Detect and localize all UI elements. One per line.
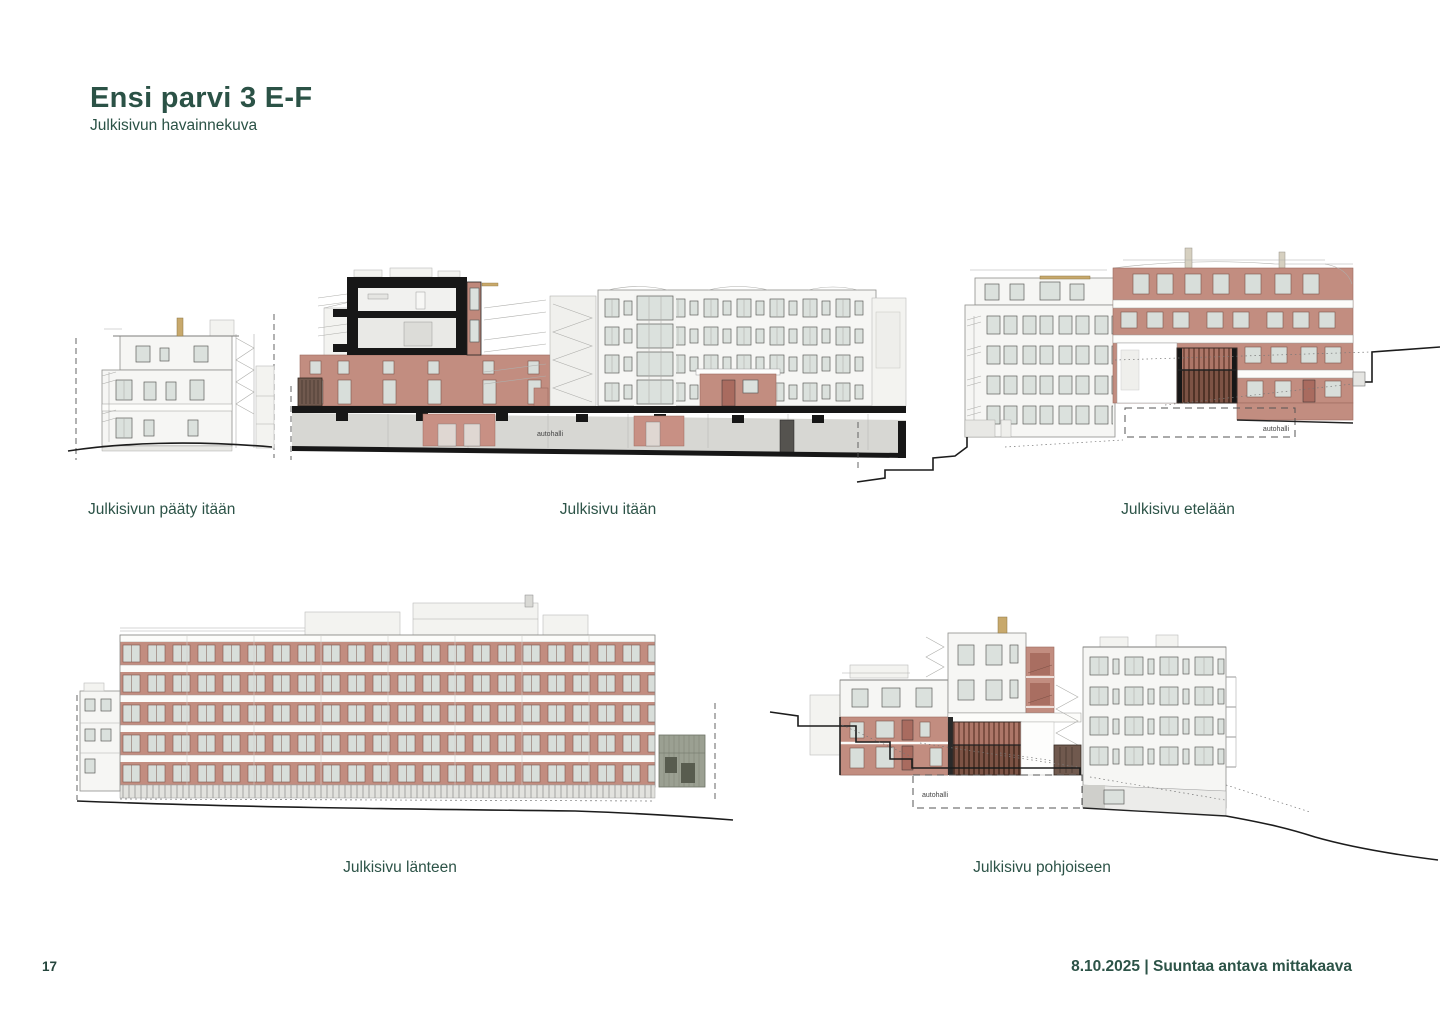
caption-south: Julkisivu etelään bbox=[1028, 501, 1328, 519]
elevation-east-end bbox=[60, 308, 295, 473]
elevation-south: autohalli bbox=[855, 240, 1440, 505]
caption-east: Julkisivu itään bbox=[458, 501, 758, 519]
east-end-drawing bbox=[68, 314, 274, 460]
elevation-west bbox=[75, 595, 735, 835]
west-drawing bbox=[77, 595, 733, 820]
south-drawing: autohalli bbox=[857, 248, 1440, 482]
elevation-east: autohalli bbox=[288, 268, 913, 468]
east-drawing: autohalli bbox=[291, 268, 906, 460]
page-title: Ensi parvi 3 E-F bbox=[90, 82, 312, 115]
garage-label: autohalli bbox=[1263, 426, 1290, 433]
garage-label: autohalli bbox=[922, 792, 949, 799]
sheet: Ensi parvi 3 E-F Julkisivun havainnekuva bbox=[0, 0, 1440, 1018]
caption-west: Julkisivu länteen bbox=[250, 859, 550, 877]
footer-text: 8.10.2025 | Suuntaa antava mittakaava bbox=[1071, 958, 1352, 976]
north-drawing: autohalli bbox=[770, 617, 1438, 860]
page-subtitle: Julkisivun havainnekuva bbox=[90, 117, 257, 135]
caption-east-end: Julkisivun pääty itään bbox=[88, 501, 235, 519]
page-number: 17 bbox=[42, 959, 57, 974]
caption-north: Julkisivu pohjoiseen bbox=[892, 859, 1192, 877]
garage-label: autohalli bbox=[537, 431, 564, 438]
elevation-north: autohalli bbox=[770, 585, 1440, 860]
